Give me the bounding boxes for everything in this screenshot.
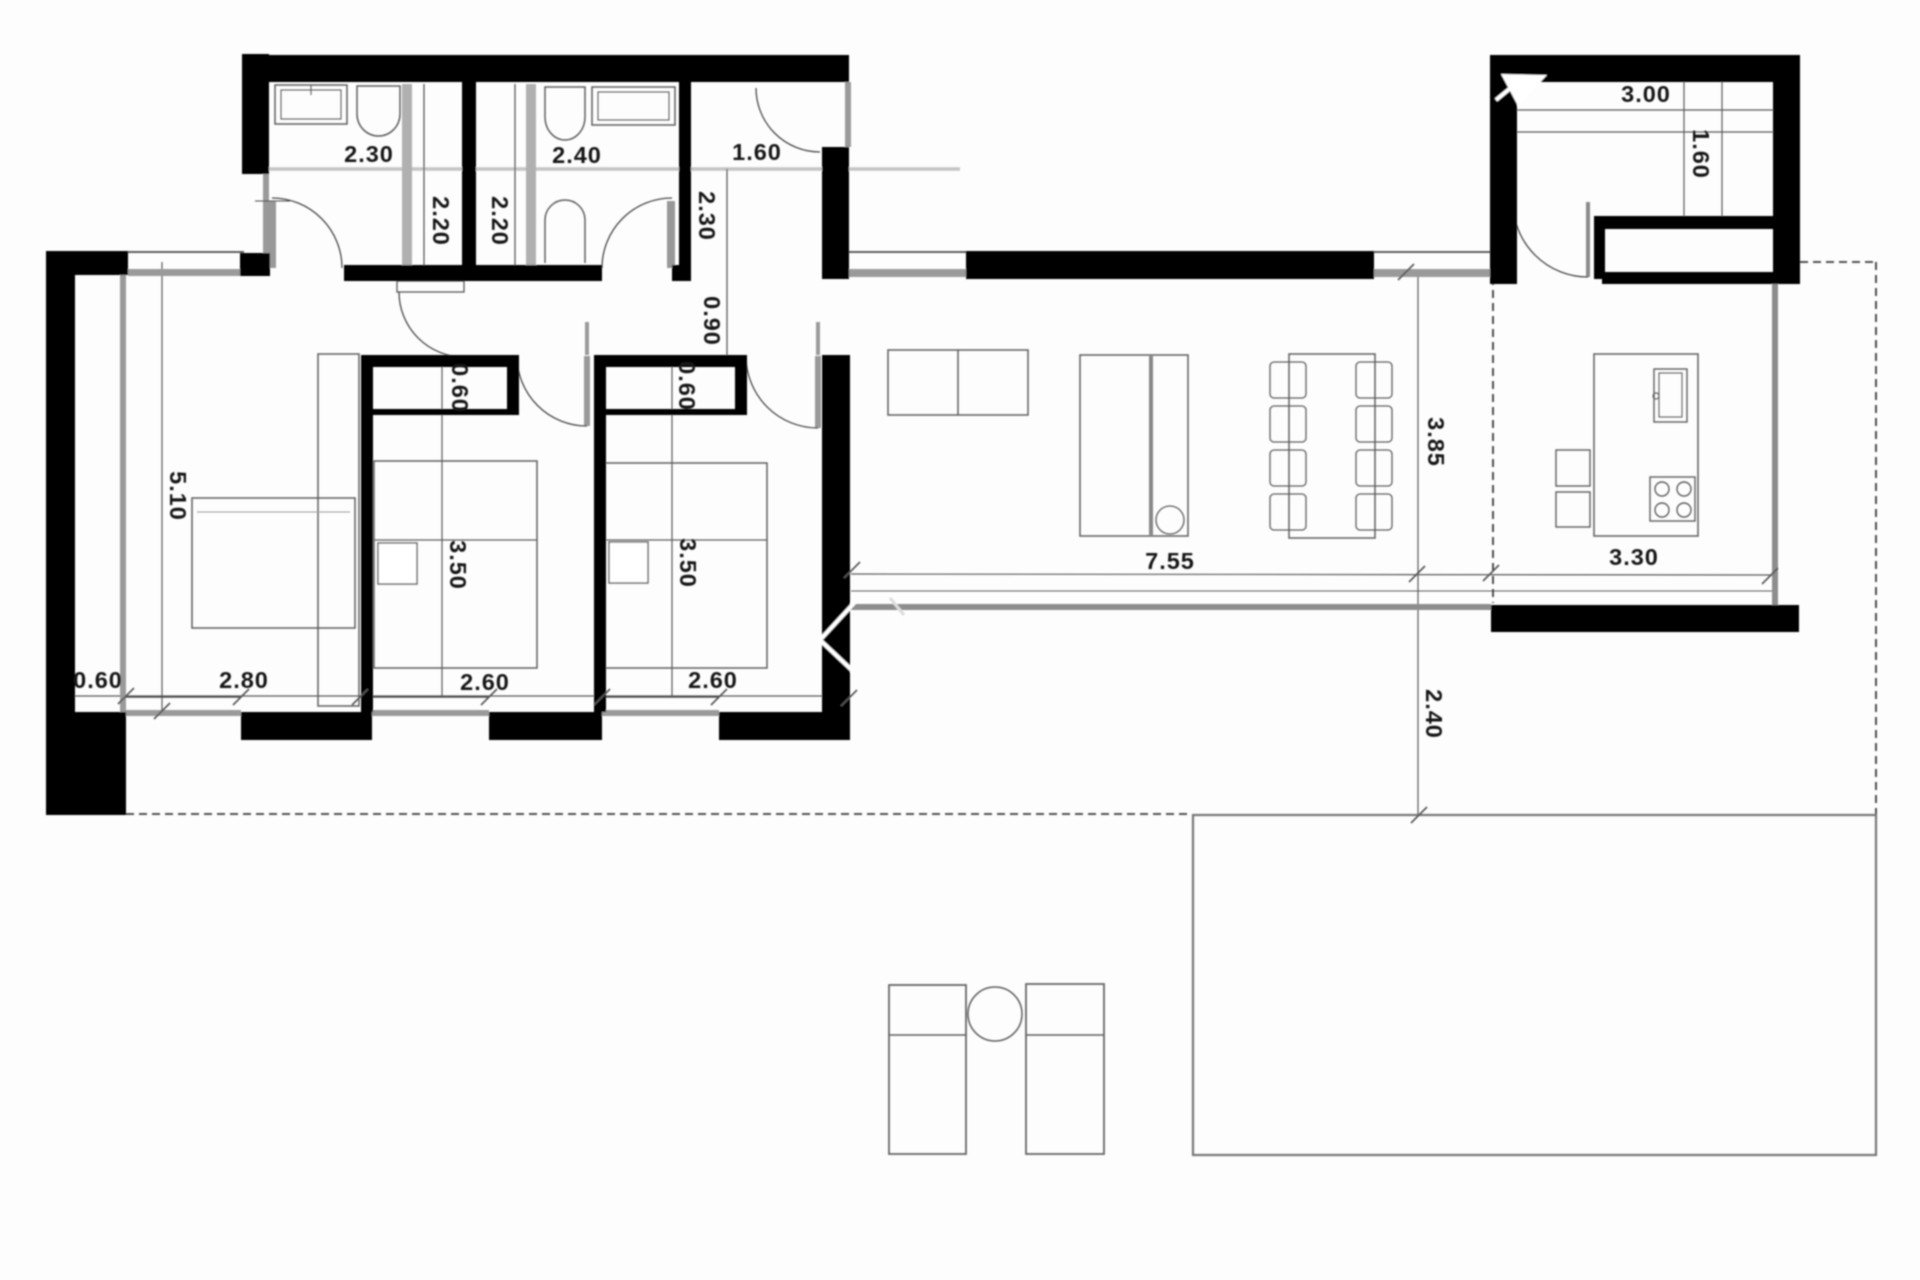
svg-text:1.60: 1.60 [732,139,782,165]
svg-text:3.50: 3.50 [445,540,471,590]
svg-text:2.60: 2.60 [460,669,510,695]
svg-text:0.60: 0.60 [674,361,700,411]
svg-text:2.30: 2.30 [344,141,394,167]
svg-text:7.55: 7.55 [1145,548,1195,574]
svg-text:2.40: 2.40 [552,142,602,168]
svg-text:0.90: 0.90 [699,296,725,346]
svg-text:2.40: 2.40 [1421,689,1447,739]
svg-text:3.85: 3.85 [1423,417,1449,467]
svg-text:3.30: 3.30 [1609,544,1659,570]
svg-text:2.60: 2.60 [688,667,738,693]
svg-text:3.50: 3.50 [675,538,701,588]
svg-text:0.60: 0.60 [73,667,123,693]
svg-text:5.10: 5.10 [165,471,191,521]
svg-text:2.30: 2.30 [694,191,720,241]
svg-text:0.60: 0.60 [447,363,473,413]
svg-text:3.00: 3.00 [1621,81,1671,107]
svg-text:2.20: 2.20 [487,196,513,246]
svg-text:2.80: 2.80 [219,667,269,693]
svg-text:2.20: 2.20 [428,196,454,246]
svg-text:1.60: 1.60 [1688,129,1714,179]
